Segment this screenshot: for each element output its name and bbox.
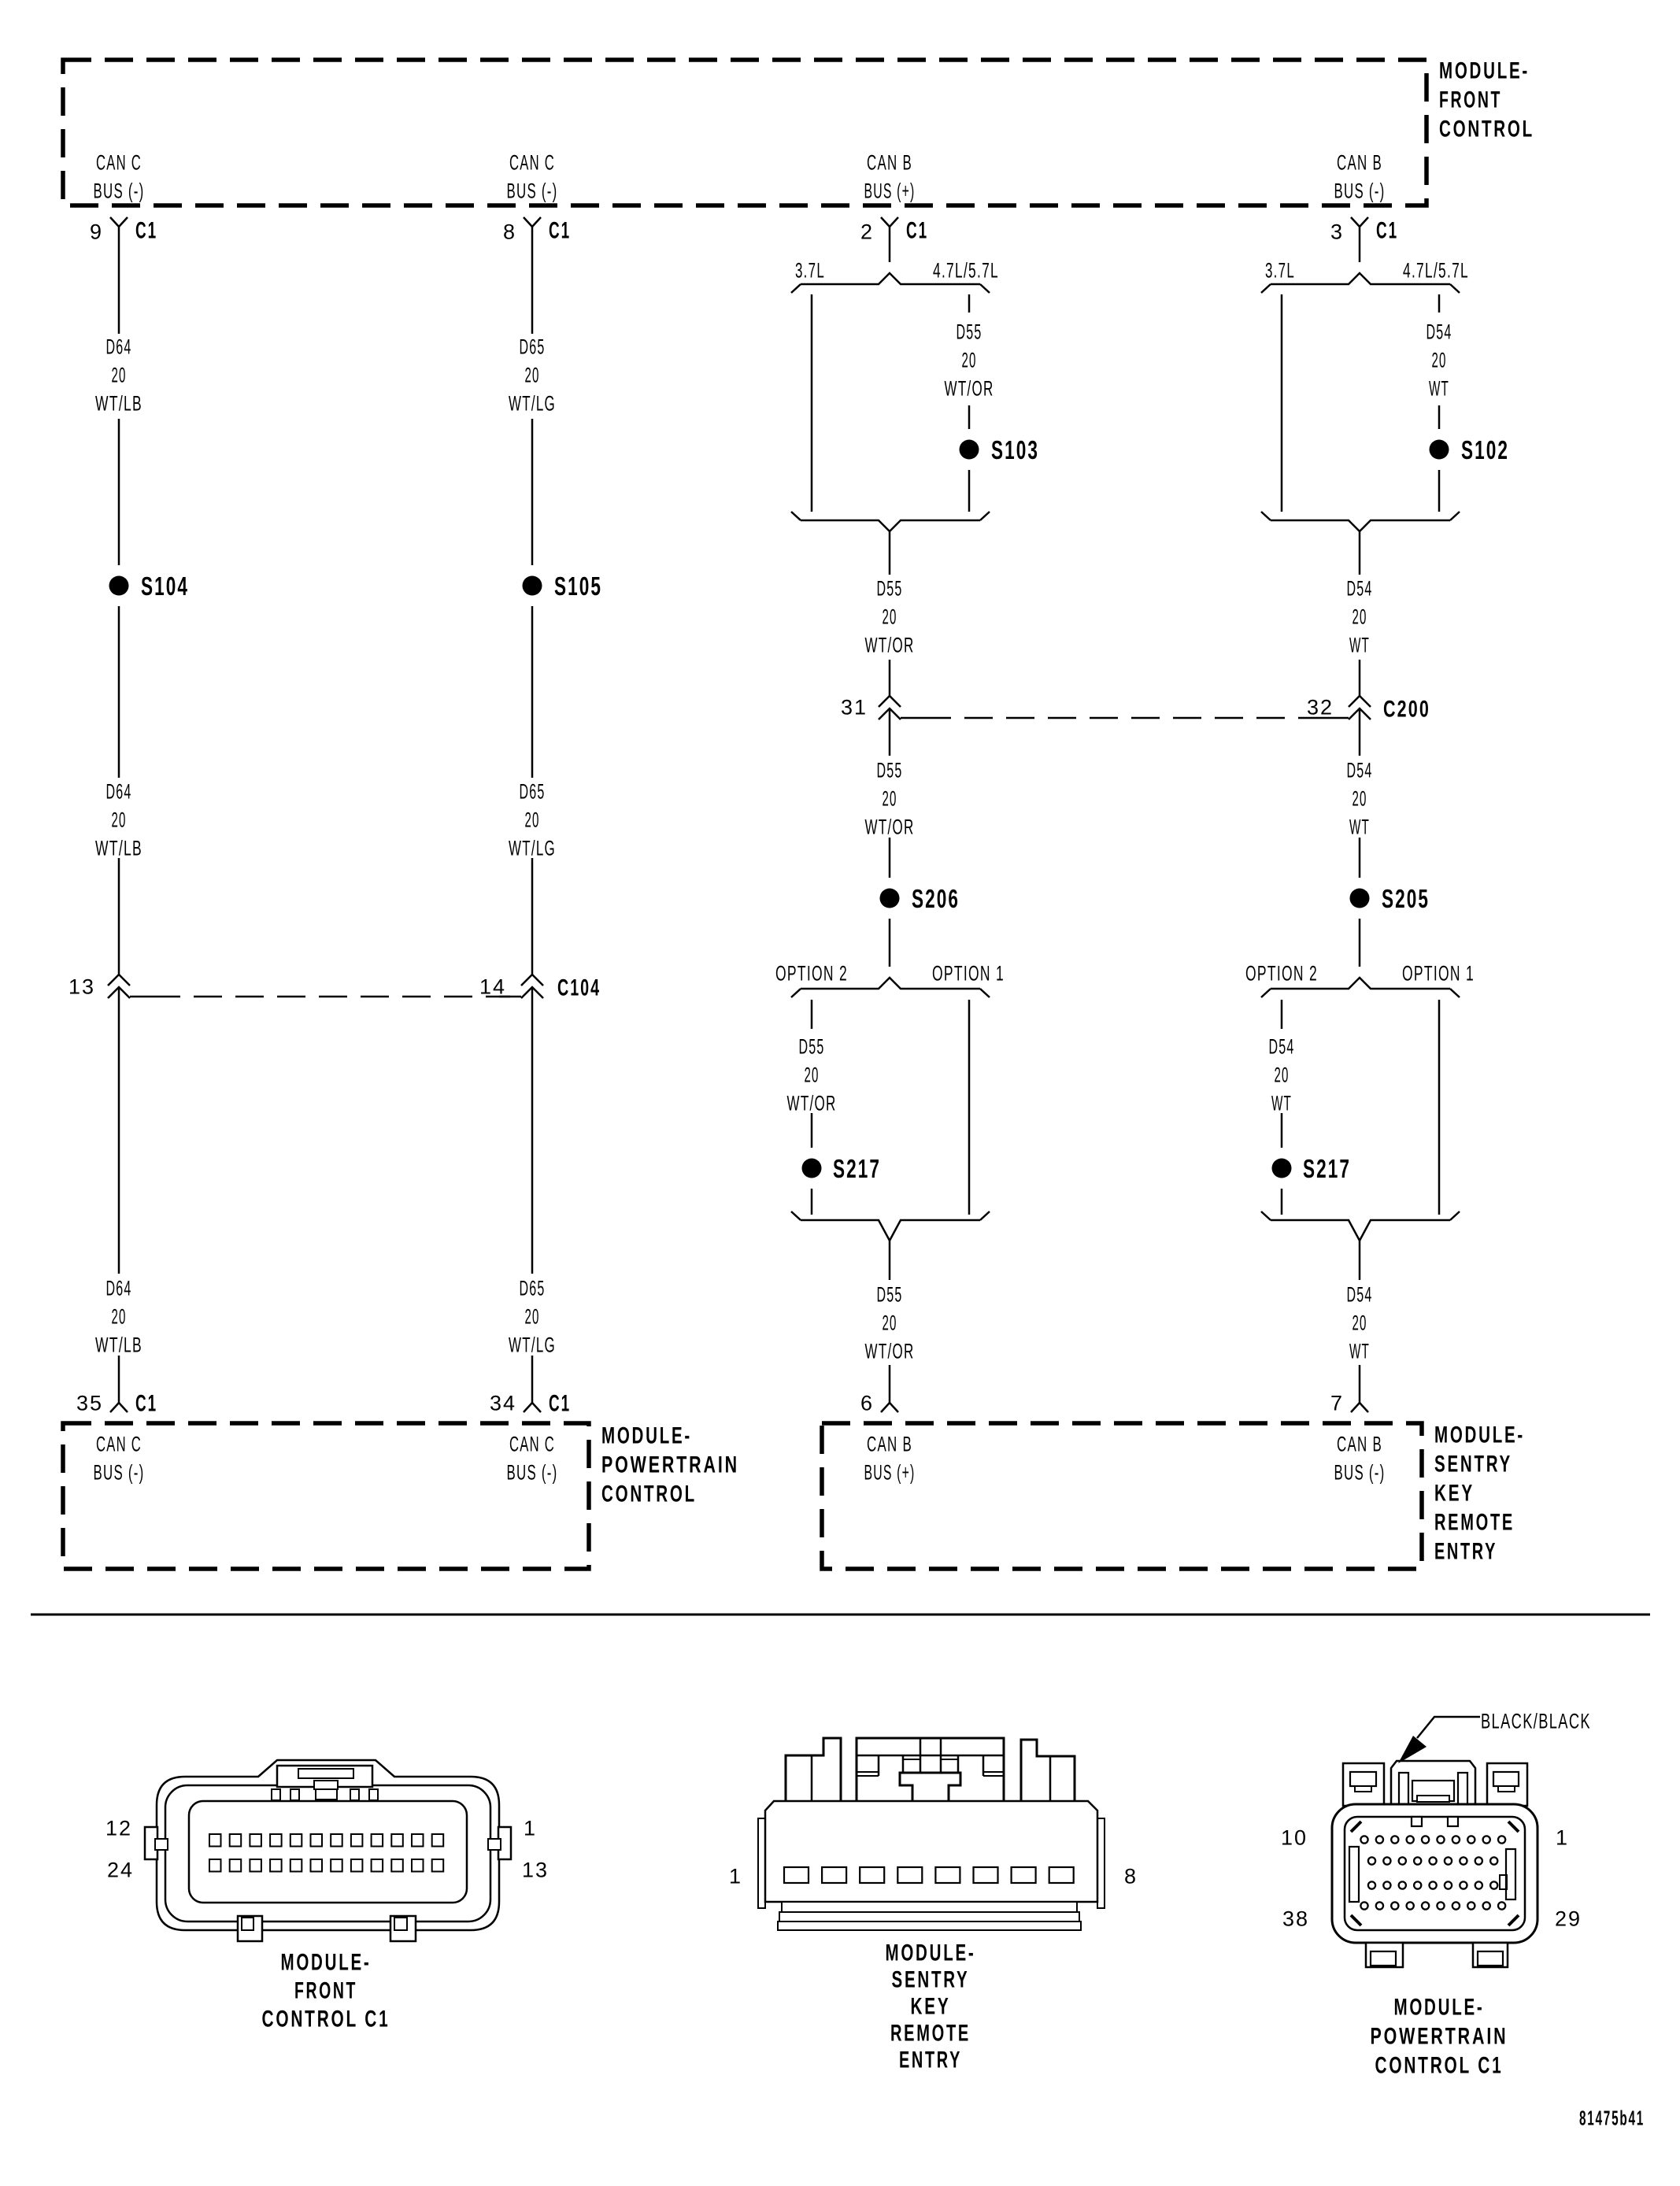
- svg-text:C1: C1: [135, 1391, 157, 1417]
- svg-text:13: 13: [522, 1858, 549, 1881]
- svg-text:2: 2: [860, 220, 874, 243]
- svg-text:D64: D64: [106, 1276, 132, 1300]
- svg-text:35: 35: [76, 1391, 103, 1415]
- svg-text:CAN C: CAN C: [509, 1432, 555, 1455]
- svg-text:S103: S103: [991, 435, 1039, 464]
- svg-text:CAN C: CAN C: [509, 150, 555, 174]
- svg-text:SENTRY: SENTRY: [892, 1967, 970, 1993]
- svg-text:D55: D55: [957, 320, 982, 343]
- svg-text:WT/LB: WT/LB: [95, 836, 142, 860]
- svg-text:BUS (+): BUS (+): [864, 179, 916, 202]
- svg-text:4.7L/5.7L: 4.7L/5.7L: [933, 258, 999, 282]
- svg-text:BUS (-): BUS (-): [1334, 1460, 1386, 1484]
- svg-text:WT: WT: [1429, 376, 1449, 400]
- svg-text:12: 12: [105, 1816, 132, 1840]
- svg-text:20: 20: [112, 808, 127, 831]
- svg-text:ENTRY: ENTRY: [1434, 1539, 1497, 1565]
- svg-text:C1: C1: [906, 218, 928, 244]
- svg-text:FRONT: FRONT: [294, 1978, 357, 2004]
- svg-text:CAN B: CAN B: [867, 1432, 912, 1455]
- svg-text:20: 20: [883, 605, 897, 628]
- svg-text:WT: WT: [1349, 1339, 1370, 1363]
- svg-text:D54: D54: [1347, 758, 1373, 782]
- svg-text:C104: C104: [557, 975, 601, 1001]
- svg-text:D65: D65: [520, 1276, 546, 1300]
- svg-text:20: 20: [1275, 1063, 1290, 1086]
- svg-text:S102: S102: [1461, 435, 1509, 464]
- svg-text:CAN C: CAN C: [96, 1432, 142, 1455]
- svg-text:D54: D54: [1347, 1282, 1373, 1306]
- svg-text:20: 20: [883, 1311, 897, 1334]
- svg-text:CONTROL C1: CONTROL C1: [1375, 2053, 1504, 2079]
- svg-text:MODULE-: MODULE-: [1434, 1422, 1525, 1448]
- svg-text:OPTION 1: OPTION 1: [1402, 961, 1475, 985]
- svg-text:D64: D64: [106, 335, 132, 358]
- svg-text:SENTRY: SENTRY: [1434, 1452, 1512, 1478]
- svg-text:OPTION 2: OPTION 2: [1245, 961, 1318, 985]
- svg-text:20: 20: [805, 1063, 820, 1086]
- svg-text:MODULE-: MODULE-: [601, 1423, 692, 1449]
- svg-text:20: 20: [1432, 348, 1447, 372]
- svg-text:MODULE-: MODULE-: [281, 1950, 372, 1976]
- svg-text:BUS (-): BUS (-): [94, 1460, 145, 1484]
- svg-text:D55: D55: [877, 758, 903, 782]
- svg-text:WT/OR: WT/OR: [945, 376, 994, 400]
- svg-text:D55: D55: [799, 1034, 825, 1058]
- svg-text:7: 7: [1330, 1391, 1344, 1415]
- svg-text:C1: C1: [135, 218, 157, 244]
- svg-text:WT/LB: WT/LB: [95, 391, 142, 415]
- svg-text:S104: S104: [141, 571, 189, 601]
- svg-text:24: 24: [107, 1858, 134, 1881]
- svg-text:20: 20: [112, 363, 127, 387]
- svg-text:OPTION 1: OPTION 1: [932, 961, 1005, 985]
- svg-text:MODULE-: MODULE-: [1394, 1995, 1485, 2021]
- svg-text:29: 29: [1555, 1907, 1582, 1930]
- svg-text:REMOTE: REMOTE: [890, 2021, 971, 2047]
- svg-text:3.7L: 3.7L: [1265, 258, 1295, 282]
- svg-text:20: 20: [1353, 1311, 1367, 1334]
- svg-text:FRONT: FRONT: [1439, 87, 1502, 113]
- svg-text:BUS (-): BUS (-): [94, 179, 145, 202]
- svg-text:C1: C1: [1376, 218, 1398, 244]
- svg-text:KEY: KEY: [911, 1994, 951, 2020]
- svg-text:8: 8: [1124, 1864, 1138, 1888]
- svg-text:MODULE-: MODULE-: [886, 1940, 976, 1966]
- svg-text:20: 20: [525, 808, 540, 831]
- svg-text:1: 1: [524, 1816, 537, 1840]
- svg-text:14: 14: [479, 975, 506, 998]
- svg-text:BUS (+): BUS (+): [864, 1460, 916, 1484]
- svg-text:POWERTRAIN: POWERTRAIN: [1371, 2024, 1508, 2050]
- svg-text:3: 3: [1330, 220, 1344, 243]
- svg-text:3.7L: 3.7L: [795, 258, 825, 282]
- svg-text:BUS (-): BUS (-): [507, 1460, 558, 1484]
- svg-text:38: 38: [1282, 1907, 1309, 1930]
- svg-text:S205: S205: [1382, 884, 1430, 913]
- svg-text:S217: S217: [1303, 1154, 1351, 1183]
- svg-text:20: 20: [525, 363, 540, 387]
- svg-text:D65: D65: [520, 779, 546, 803]
- svg-text:REMOTE: REMOTE: [1434, 1510, 1515, 1536]
- svg-text:6: 6: [860, 1391, 874, 1415]
- svg-text:D54: D54: [1427, 320, 1452, 343]
- svg-text:BUS (-): BUS (-): [507, 179, 558, 202]
- svg-text:WT/LG: WT/LG: [509, 836, 556, 860]
- svg-text:10: 10: [1281, 1825, 1308, 1849]
- svg-text:34: 34: [490, 1391, 516, 1415]
- svg-text:C1: C1: [549, 1391, 571, 1417]
- svg-text:S206: S206: [912, 884, 960, 913]
- svg-text:13: 13: [68, 975, 95, 998]
- svg-text:WT/LG: WT/LG: [509, 1333, 556, 1356]
- svg-text:CONTROL: CONTROL: [1439, 117, 1534, 142]
- svg-text:WT/OR: WT/OR: [787, 1091, 837, 1115]
- svg-text:WT: WT: [1271, 1091, 1292, 1115]
- svg-text:1: 1: [1556, 1825, 1569, 1849]
- svg-text:KEY: KEY: [1434, 1481, 1475, 1507]
- svg-text:1: 1: [729, 1864, 742, 1888]
- svg-text:4.7L/5.7L: 4.7L/5.7L: [1403, 258, 1469, 282]
- svg-text:D54: D54: [1269, 1034, 1295, 1058]
- svg-text:CAN B: CAN B: [1337, 150, 1382, 174]
- svg-text:32: 32: [1307, 695, 1334, 719]
- svg-text:WT: WT: [1349, 633, 1370, 657]
- svg-text:D65: D65: [520, 335, 546, 358]
- svg-text:S217: S217: [833, 1154, 881, 1183]
- svg-text:20: 20: [883, 786, 897, 810]
- svg-text:CAN C: CAN C: [96, 150, 142, 174]
- svg-text:C1: C1: [549, 218, 571, 244]
- svg-text:CAN B: CAN B: [1337, 1432, 1382, 1455]
- svg-text:20: 20: [1353, 605, 1367, 628]
- svg-text:OPTION 2: OPTION 2: [775, 961, 848, 985]
- svg-text:CONTROL C1: CONTROL C1: [262, 2007, 390, 2032]
- svg-text:WT/OR: WT/OR: [865, 815, 915, 838]
- svg-text:WT/OR: WT/OR: [865, 633, 915, 657]
- svg-text:81475b41: 81475b41: [1579, 2106, 1645, 2130]
- svg-text:WT/OR: WT/OR: [865, 1339, 915, 1363]
- svg-text:CAN B: CAN B: [867, 150, 912, 174]
- svg-text:WT/LG: WT/LG: [509, 391, 556, 415]
- svg-text:D55: D55: [877, 1282, 903, 1306]
- svg-text:20: 20: [1353, 786, 1367, 810]
- svg-text:WT: WT: [1349, 815, 1370, 838]
- svg-text:WT/LB: WT/LB: [95, 1333, 142, 1356]
- svg-text:D64: D64: [106, 779, 132, 803]
- svg-text:ENTRY: ENTRY: [899, 2047, 962, 2073]
- svg-text:MODULE-: MODULE-: [1439, 58, 1530, 84]
- svg-text:20: 20: [525, 1304, 540, 1328]
- svg-text:S105: S105: [554, 571, 602, 601]
- svg-text:9: 9: [90, 220, 103, 243]
- svg-text:20: 20: [112, 1304, 127, 1328]
- svg-text:D54: D54: [1347, 576, 1373, 600]
- svg-text:POWERTRAIN: POWERTRAIN: [601, 1452, 739, 1478]
- svg-text:8: 8: [503, 220, 516, 243]
- svg-text:C200: C200: [1383, 697, 1430, 723]
- svg-text:CONTROL: CONTROL: [601, 1481, 697, 1507]
- svg-text:BLACK/BLACK: BLACK/BLACK: [1481, 1709, 1591, 1733]
- svg-text:D55: D55: [877, 576, 903, 600]
- svg-text:BUS (-): BUS (-): [1334, 179, 1386, 202]
- svg-text:31: 31: [841, 695, 868, 719]
- svg-text:20: 20: [962, 348, 977, 372]
